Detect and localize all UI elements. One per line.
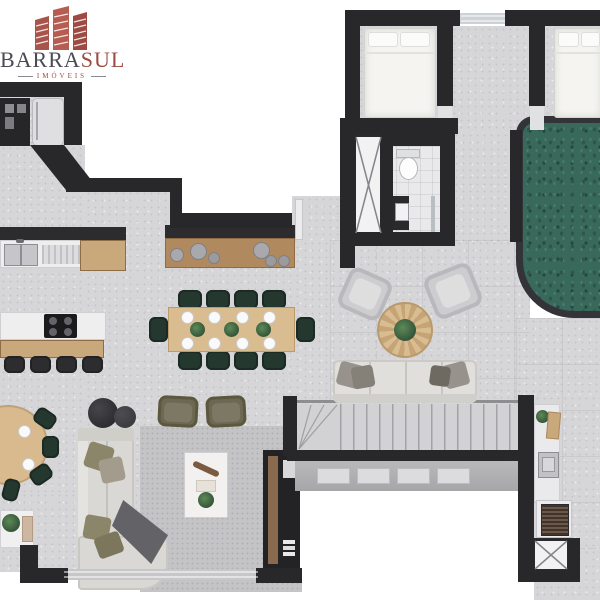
sink-basin-1 [4, 244, 21, 266]
ledge-unit [357, 468, 390, 484]
brand-tagline: IMÓVEIS [37, 72, 87, 80]
wall [0, 82, 82, 97]
sofa-pillow [98, 456, 126, 484]
stairs-treads [340, 404, 527, 450]
tagline-rule-left [18, 76, 33, 77]
brand-tagline-row: IMÓVEIS [0, 72, 124, 80]
media-wood-shelf [268, 456, 278, 564]
bed-pillow [558, 32, 579, 47]
books [283, 546, 295, 550]
faucet [16, 239, 24, 243]
place-setting [236, 311, 249, 324]
coffee-table-plant [198, 492, 214, 508]
books [283, 552, 295, 556]
duvet-fold [554, 52, 600, 54]
burner [49, 328, 57, 336]
bar-stool [82, 356, 103, 373]
cutting-board [546, 411, 561, 439]
stairs-winder [297, 404, 340, 450]
barrasul-logo: BARRASUL IMÓVEIS [0, 6, 124, 76]
counter-wood-cabinet [80, 240, 126, 271]
ledge-unit [397, 468, 430, 484]
media-device [283, 460, 295, 478]
wall [380, 146, 393, 236]
wall [510, 130, 522, 242]
wall [505, 10, 600, 26]
console-decor [22, 516, 33, 542]
dining-chair [149, 317, 168, 342]
duvet-fold [364, 52, 434, 54]
wall [170, 213, 292, 228]
dining-chair [234, 351, 258, 370]
wall [64, 97, 82, 145]
olive-armchair-seat [212, 402, 241, 422]
table-centerpiece [190, 322, 205, 337]
dining-chair [206, 351, 230, 370]
table-centerpiece [224, 322, 239, 337]
brand-name-primary: BARRA [0, 47, 81, 72]
wall [256, 568, 302, 583]
brand-name: BARRASUL [0, 50, 124, 70]
barbecue-grill [541, 504, 569, 536]
buffet-bowl [265, 255, 277, 267]
coffee-table-tray [196, 480, 216, 492]
stairs-side-wall [283, 396, 297, 456]
books [283, 540, 295, 544]
wall [20, 568, 68, 583]
terrace-right-floor [516, 318, 600, 398]
bed-pillow [368, 32, 398, 47]
bed-pillow [581, 32, 600, 47]
wall [340, 232, 455, 246]
place-setting [208, 337, 221, 350]
place-setting [18, 425, 31, 438]
place-setting [236, 337, 249, 350]
buffet-bowl [278, 255, 290, 267]
console-plant [2, 514, 20, 532]
side-table-round-small [114, 406, 136, 428]
fridge-handle [36, 102, 38, 140]
wall [345, 10, 360, 122]
place-setting [263, 337, 276, 350]
under-stairs-wall [287, 450, 533, 461]
buffet-bowl [190, 243, 207, 260]
dining-chair [262, 351, 286, 370]
vanity-basin [395, 203, 409, 221]
wall [568, 538, 580, 572]
olive-armchair-seat [164, 402, 193, 422]
wall [437, 26, 453, 106]
oven-appliance [5, 117, 14, 129]
sofa-seam [405, 362, 407, 394]
sofa-pillow [429, 365, 452, 388]
burner [49, 317, 57, 325]
wall [529, 26, 545, 106]
sofa-armrest [78, 428, 134, 441]
floor-plan: BARRASUL IMÓVEIS [0, 0, 600, 600]
ledge-unit [317, 468, 350, 484]
table-centerpiece [256, 322, 271, 337]
brand-name-accent: SUL [81, 47, 126, 72]
pool [516, 116, 600, 318]
wall [66, 178, 182, 192]
place-setting [181, 311, 194, 324]
ledge-unit [437, 468, 470, 484]
place-setting [208, 311, 221, 324]
living-window [62, 569, 260, 580]
corridor-floor [453, 132, 518, 242]
double-height-void [300, 491, 518, 575]
burner [64, 317, 72, 325]
bedroom2-door [530, 104, 544, 130]
bar-stool [30, 356, 51, 373]
service-shaft [532, 538, 570, 572]
entry-door [295, 199, 303, 240]
buildings-icon [31, 6, 93, 50]
dining-chair [178, 351, 202, 370]
terrace-sofa-back [333, 394, 477, 403]
buffet-bowl [208, 252, 220, 264]
coffee-machine [5, 104, 14, 113]
round-table-chair [42, 436, 59, 458]
sofa-pillow [350, 364, 375, 389]
burner [64, 328, 72, 336]
gourmet-sink-basin [542, 457, 555, 472]
tagline-rule-right [91, 76, 106, 77]
wall [345, 10, 460, 26]
place-setting [181, 337, 194, 350]
bar-stool [56, 356, 77, 373]
small-appliance [17, 104, 26, 113]
bar-stool [4, 356, 25, 373]
wall [518, 395, 534, 582]
wall [518, 570, 580, 582]
sink-basin-2 [21, 244, 38, 266]
wall [440, 132, 455, 246]
buffet-bowl [170, 248, 184, 262]
dining-chair [296, 317, 315, 342]
bed-pillow [400, 32, 430, 47]
toilet-bowl [399, 157, 418, 180]
sink-drainboard [42, 245, 84, 264]
rattan-table-plant [394, 319, 416, 341]
balcony-glass-door [460, 13, 506, 24]
